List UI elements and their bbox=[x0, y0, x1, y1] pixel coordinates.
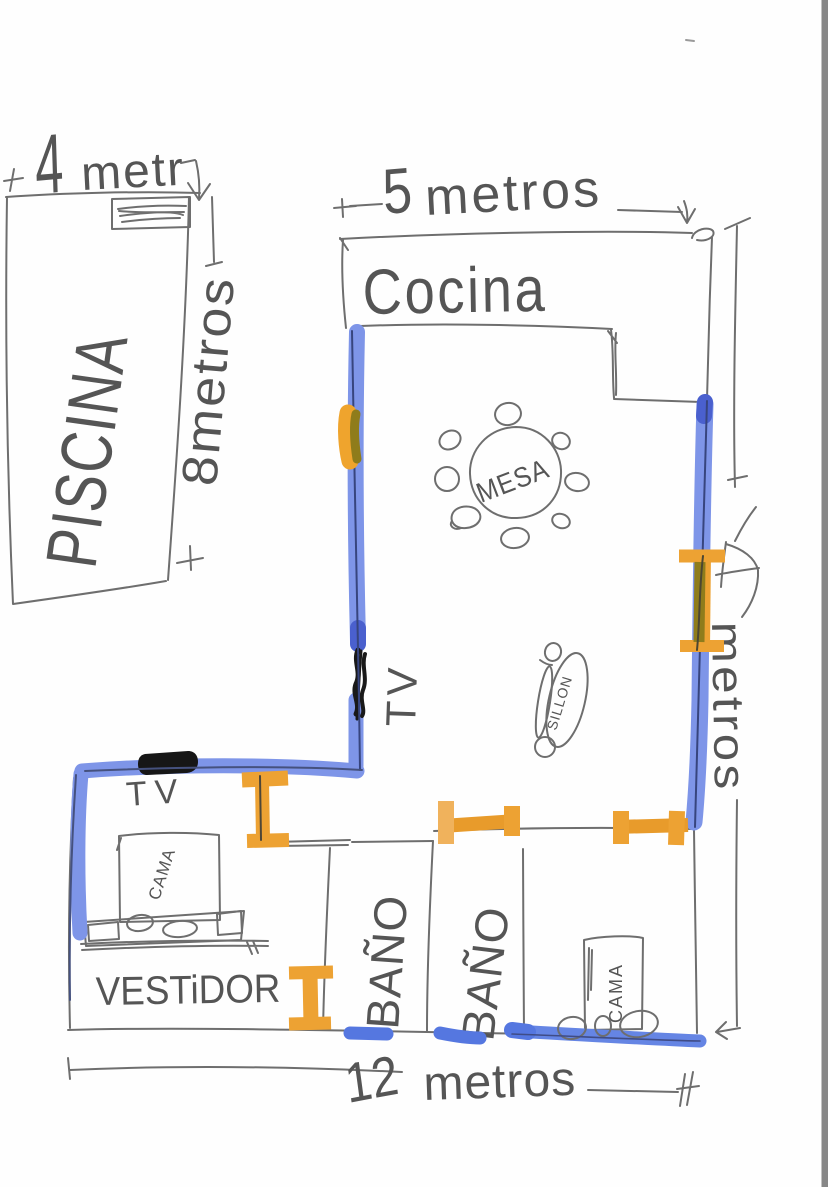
svg-text:TV: TV bbox=[125, 772, 187, 814]
svg-text:VESTiDOR: VESTiDOR bbox=[95, 966, 280, 1014]
svg-text:metr: metr bbox=[80, 143, 187, 201]
svg-text:metros: metros bbox=[423, 1053, 577, 1111]
svg-text:PISCINA: PISCINA bbox=[31, 328, 143, 572]
svg-text:4: 4 bbox=[34, 115, 65, 212]
svg-text:Cocina: Cocina bbox=[362, 253, 548, 328]
svg-text:CAMA: CAMA bbox=[145, 846, 179, 902]
svg-text:BAÑO: BAÑO bbox=[451, 904, 519, 1044]
svg-text:CAMA: CAMA bbox=[606, 963, 626, 1023]
svg-text:12: 12 bbox=[341, 1044, 402, 1115]
svg-text:TV: TV bbox=[377, 662, 426, 727]
svg-text:BAÑO: BAÑO bbox=[356, 893, 417, 1031]
svg-text:5: 5 bbox=[381, 155, 414, 228]
svg-text:8metros: 8metros bbox=[172, 274, 246, 488]
svg-text:MESA: MESA bbox=[472, 453, 553, 509]
svg-text:metros: metros bbox=[424, 160, 604, 227]
